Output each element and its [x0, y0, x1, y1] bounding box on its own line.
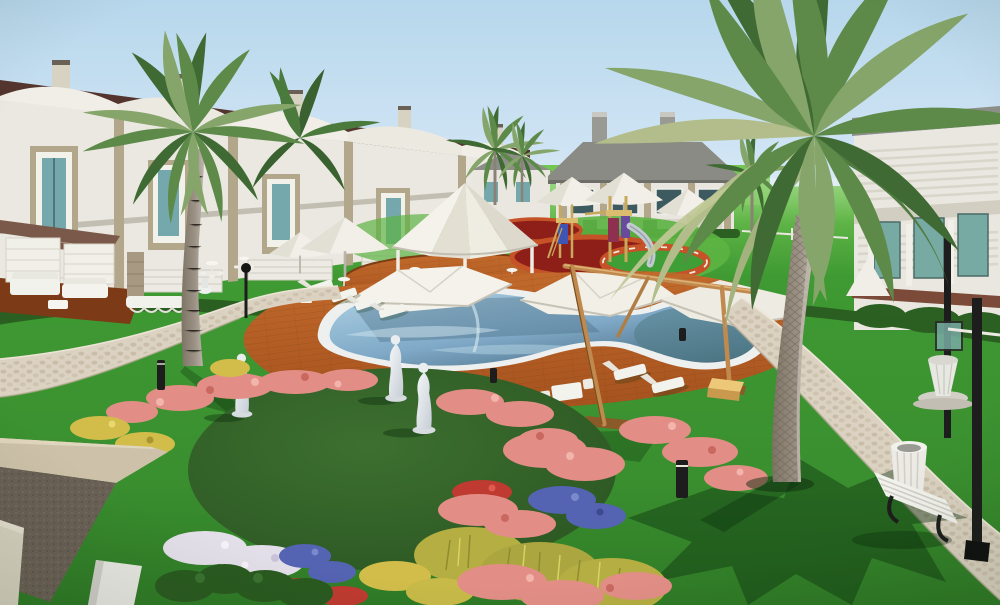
- rendering-canvas: [0, 0, 1000, 605]
- vignette: [0, 0, 1000, 605]
